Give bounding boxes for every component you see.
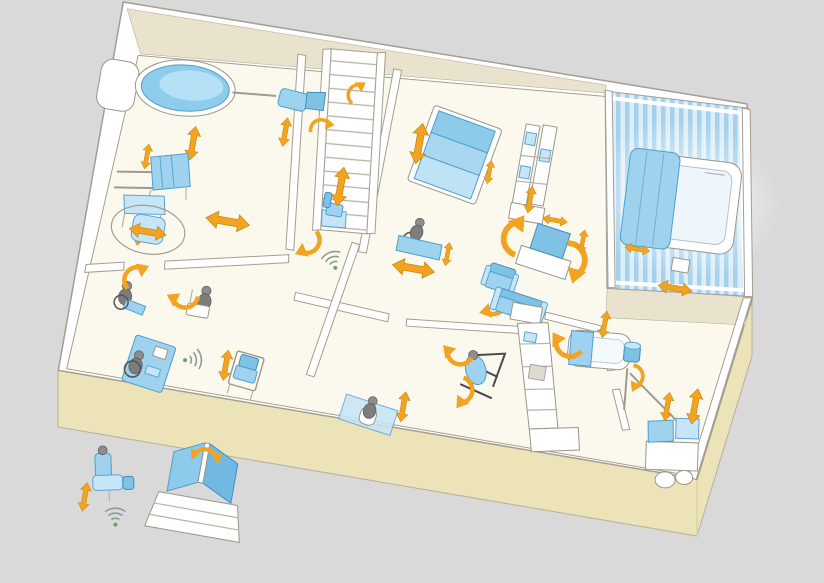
step-stool: [671, 257, 690, 273]
swivel-cabinet: [623, 342, 641, 363]
hot-tub: [619, 148, 743, 258]
floorplan-illustration: [0, 0, 824, 583]
adjustable-bathtub: [567, 329, 632, 370]
toilet: [655, 472, 676, 489]
basin: [675, 470, 692, 485]
